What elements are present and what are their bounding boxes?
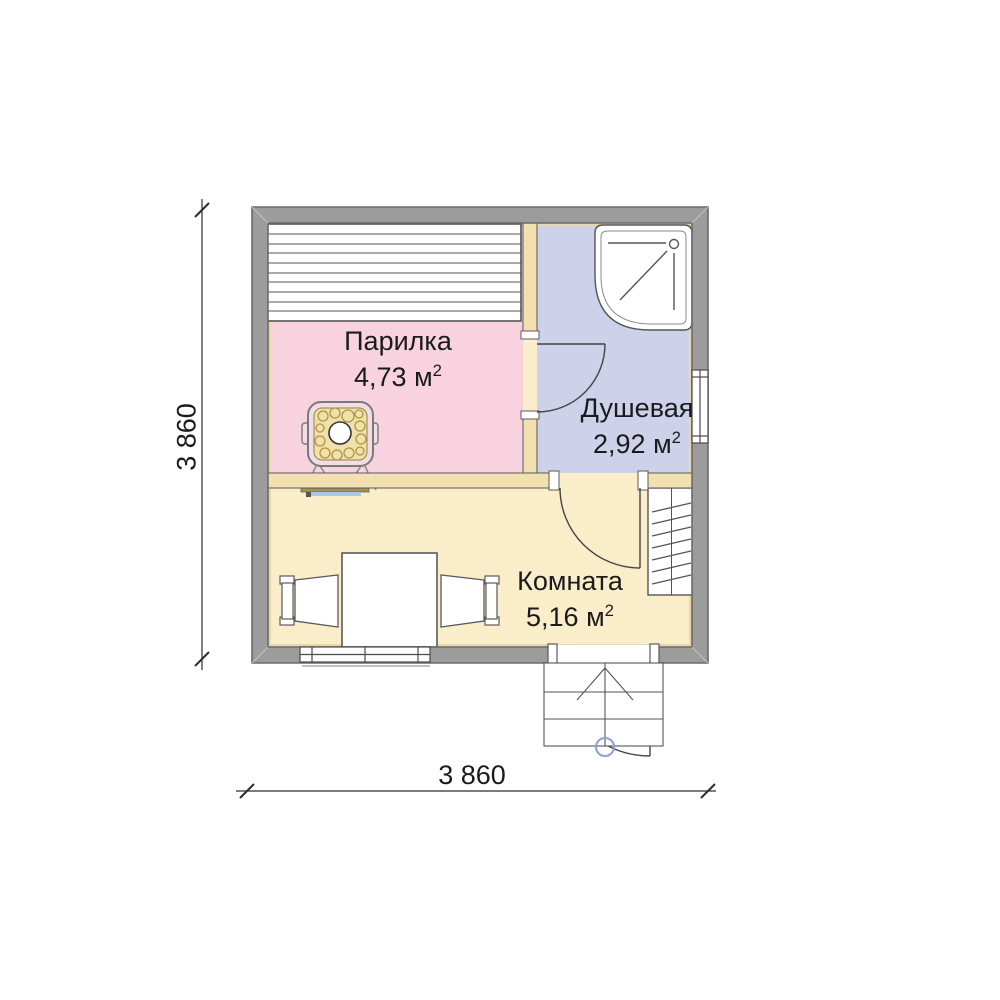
entrance-opening — [548, 644, 659, 664]
floor-plan-drawing — [0, 0, 1000, 1000]
stove-base-shadow — [309, 492, 361, 496]
room-area: 4,73 м2 — [354, 359, 442, 395]
room-label-parilka: Парилка 4,73 м2 — [344, 323, 452, 395]
room-label-komnata: Комната 5,16 м2 — [517, 563, 623, 635]
dimension-width-text: 3 860 — [438, 760, 506, 791]
table — [342, 553, 437, 647]
partition-horizontal-left — [268, 473, 549, 488]
dimension-height-text: 3 860 — [172, 403, 203, 471]
door-jamb — [650, 644, 659, 664]
partition-horizontal-right — [648, 473, 692, 488]
shower-tray — [595, 225, 692, 330]
entrance-stairs — [544, 663, 663, 756]
room-name: Комната — [517, 563, 623, 599]
room-name: Парилка — [344, 323, 452, 359]
door-jamb — [521, 331, 539, 339]
area-superscript: 2 — [605, 601, 614, 620]
door-jamb — [549, 471, 559, 490]
door-jamb — [521, 411, 539, 419]
window-right — [692, 370, 708, 443]
area-superscript: 2 — [672, 428, 681, 447]
area-superscript: 2 — [433, 361, 442, 380]
partition-vertical-upper — [523, 222, 537, 332]
room-area: 2,92 м2 — [593, 426, 681, 462]
room-label-dushevaya: Душевая 2,92 м2 — [581, 390, 694, 462]
ladder — [648, 488, 695, 595]
chair-left-backrest — [282, 583, 293, 619]
sauna-bench — [267, 224, 521, 321]
chair-right-backrest — [486, 583, 497, 619]
door-jamb — [548, 644, 557, 664]
room-name: Душевая — [581, 390, 694, 426]
floor-plan-page: Парилка 4,73 м2 Душевая 2,92 м2 Комната … — [0, 0, 1000, 1000]
stove-chimney — [329, 422, 351, 444]
partition-vertical-lower — [523, 418, 537, 474]
chair-right-seat — [441, 575, 484, 627]
room-area: 5,16 м2 — [526, 599, 614, 635]
stove-base-dot — [306, 492, 311, 497]
door-jamb — [638, 471, 648, 490]
chair-left-seat — [295, 575, 338, 627]
